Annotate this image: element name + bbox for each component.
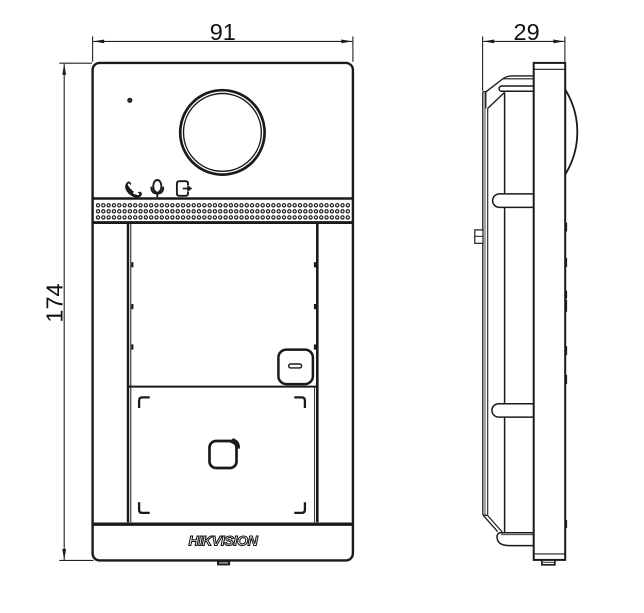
- svg-text:174: 174: [42, 283, 68, 322]
- svg-text:29: 29: [514, 19, 540, 45]
- svg-text:91: 91: [210, 19, 236, 45]
- svg-text:HIKVISION: HIKVISION: [189, 534, 259, 550]
